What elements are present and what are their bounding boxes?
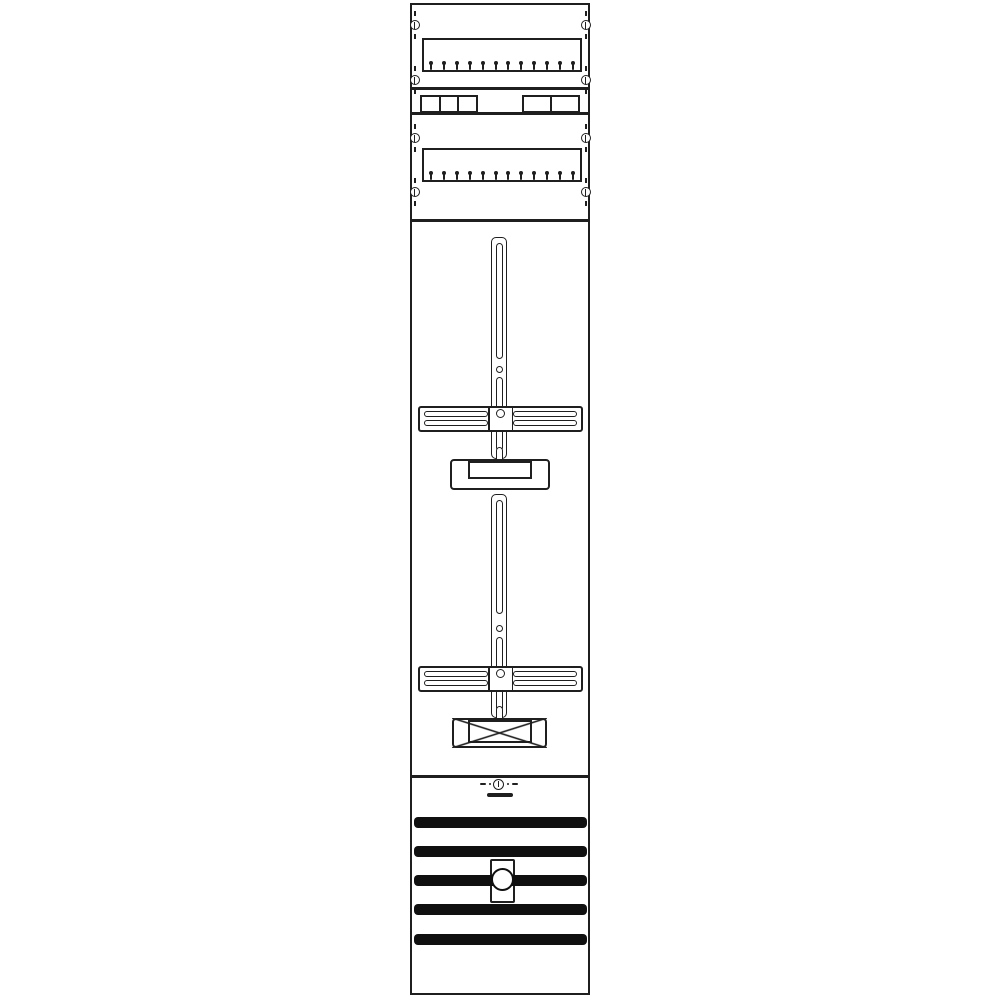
- crossbar-slot: [424, 680, 488, 686]
- device-module-cell: [422, 97, 439, 111]
- crossbar-web-line: [512, 408, 514, 430]
- cross-brace-icon: [452, 718, 547, 748]
- rail-tick: [495, 62, 497, 70]
- alignment-mark: [414, 147, 416, 152]
- crossbar-web-line: [488, 408, 490, 430]
- divider-line: [412, 87, 588, 90]
- rail-tick: [443, 172, 445, 180]
- seal-mark: [487, 793, 513, 797]
- terminal-box-inner: [468, 461, 532, 479]
- device-module-cell: [439, 97, 458, 111]
- device-module-group: [522, 95, 580, 113]
- rail-tick: [456, 62, 458, 70]
- device-module-cell: [550, 97, 578, 111]
- alignment-mark: [414, 201, 416, 206]
- alignment-mark: [585, 201, 587, 206]
- crossbar-slot: [424, 420, 488, 426]
- rail-tick: [533, 172, 535, 180]
- rail-tick: [546, 172, 548, 180]
- crossbar-slot: [424, 671, 488, 677]
- cable-clamp-screw: [491, 868, 514, 891]
- alignment-mark: [414, 124, 416, 129]
- crossbar-slot: [513, 671, 577, 677]
- rail-slot: [496, 500, 503, 614]
- screw-slot: [585, 22, 587, 29]
- cover-strip-bar: [414, 904, 587, 915]
- screw-slot: [414, 77, 416, 84]
- alignment-mark: [585, 178, 587, 183]
- crossbar-hole: [496, 669, 505, 678]
- center-mark-dash: [512, 783, 518, 785]
- alignment-mark: [414, 89, 416, 94]
- alignment-mark: [414, 178, 416, 183]
- rail-tick: [533, 62, 535, 70]
- rail-tick: [559, 62, 561, 70]
- screw-slot: [585, 135, 587, 142]
- cover-strip-bar: [414, 846, 587, 857]
- rail-tick: [495, 172, 497, 180]
- rail-hole: [496, 625, 503, 632]
- screw-slot: [414, 189, 416, 196]
- alignment-mark: [585, 89, 587, 94]
- alignment-mark: [585, 34, 587, 39]
- rail-slot: [496, 243, 503, 359]
- screw-slot: [498, 781, 500, 787]
- rail-hole: [496, 366, 503, 373]
- alignment-mark: [585, 66, 587, 71]
- rail-end-notch: [496, 447, 503, 459]
- crossbar-web-line: [512, 668, 514, 690]
- rail-tick: [482, 172, 484, 180]
- rail-tick: [430, 172, 432, 180]
- rail-tick: [443, 62, 445, 70]
- divider-line: [412, 112, 588, 115]
- device-module-cell: [524, 97, 550, 111]
- alignment-mark: [585, 124, 587, 129]
- center-mark-dash: [480, 783, 486, 785]
- crossbar-web-line: [488, 668, 490, 690]
- rail-tick: [572, 62, 574, 70]
- crossbar-slot: [513, 420, 577, 426]
- crossbar-slot: [513, 680, 577, 686]
- screw-slot: [585, 189, 587, 196]
- din-rail: [422, 38, 582, 72]
- rail-tick: [430, 62, 432, 70]
- alignment-mark: [414, 34, 416, 39]
- device-module-cell: [457, 97, 476, 111]
- divider-line: [412, 775, 588, 778]
- rail-tick: [469, 172, 471, 180]
- crossbar-slot: [424, 411, 488, 417]
- rail-tick: [469, 62, 471, 70]
- meter-panel-drawing: [0, 0, 1000, 1000]
- rail-tick: [572, 172, 574, 180]
- rail-tick: [559, 172, 561, 180]
- cover-strip-bar: [414, 817, 587, 828]
- screw-slot: [414, 22, 416, 29]
- crossbar-slot: [513, 411, 577, 417]
- rail-tick: [546, 62, 548, 70]
- alignment-mark: [414, 66, 416, 71]
- screw-slot: [585, 77, 587, 84]
- din-rail: [422, 148, 582, 182]
- rail-tick: [456, 172, 458, 180]
- alignment-mark: [585, 147, 587, 152]
- rail-end-notch: [496, 706, 503, 718]
- cover-strip-bar: [414, 934, 587, 945]
- divider-line: [412, 219, 588, 222]
- device-module-group: [420, 95, 478, 113]
- alignment-mark: [414, 11, 416, 16]
- screw-slot: [414, 135, 416, 142]
- rail-tick: [482, 62, 484, 70]
- alignment-mark: [585, 11, 587, 16]
- crossbar-hole: [496, 409, 505, 418]
